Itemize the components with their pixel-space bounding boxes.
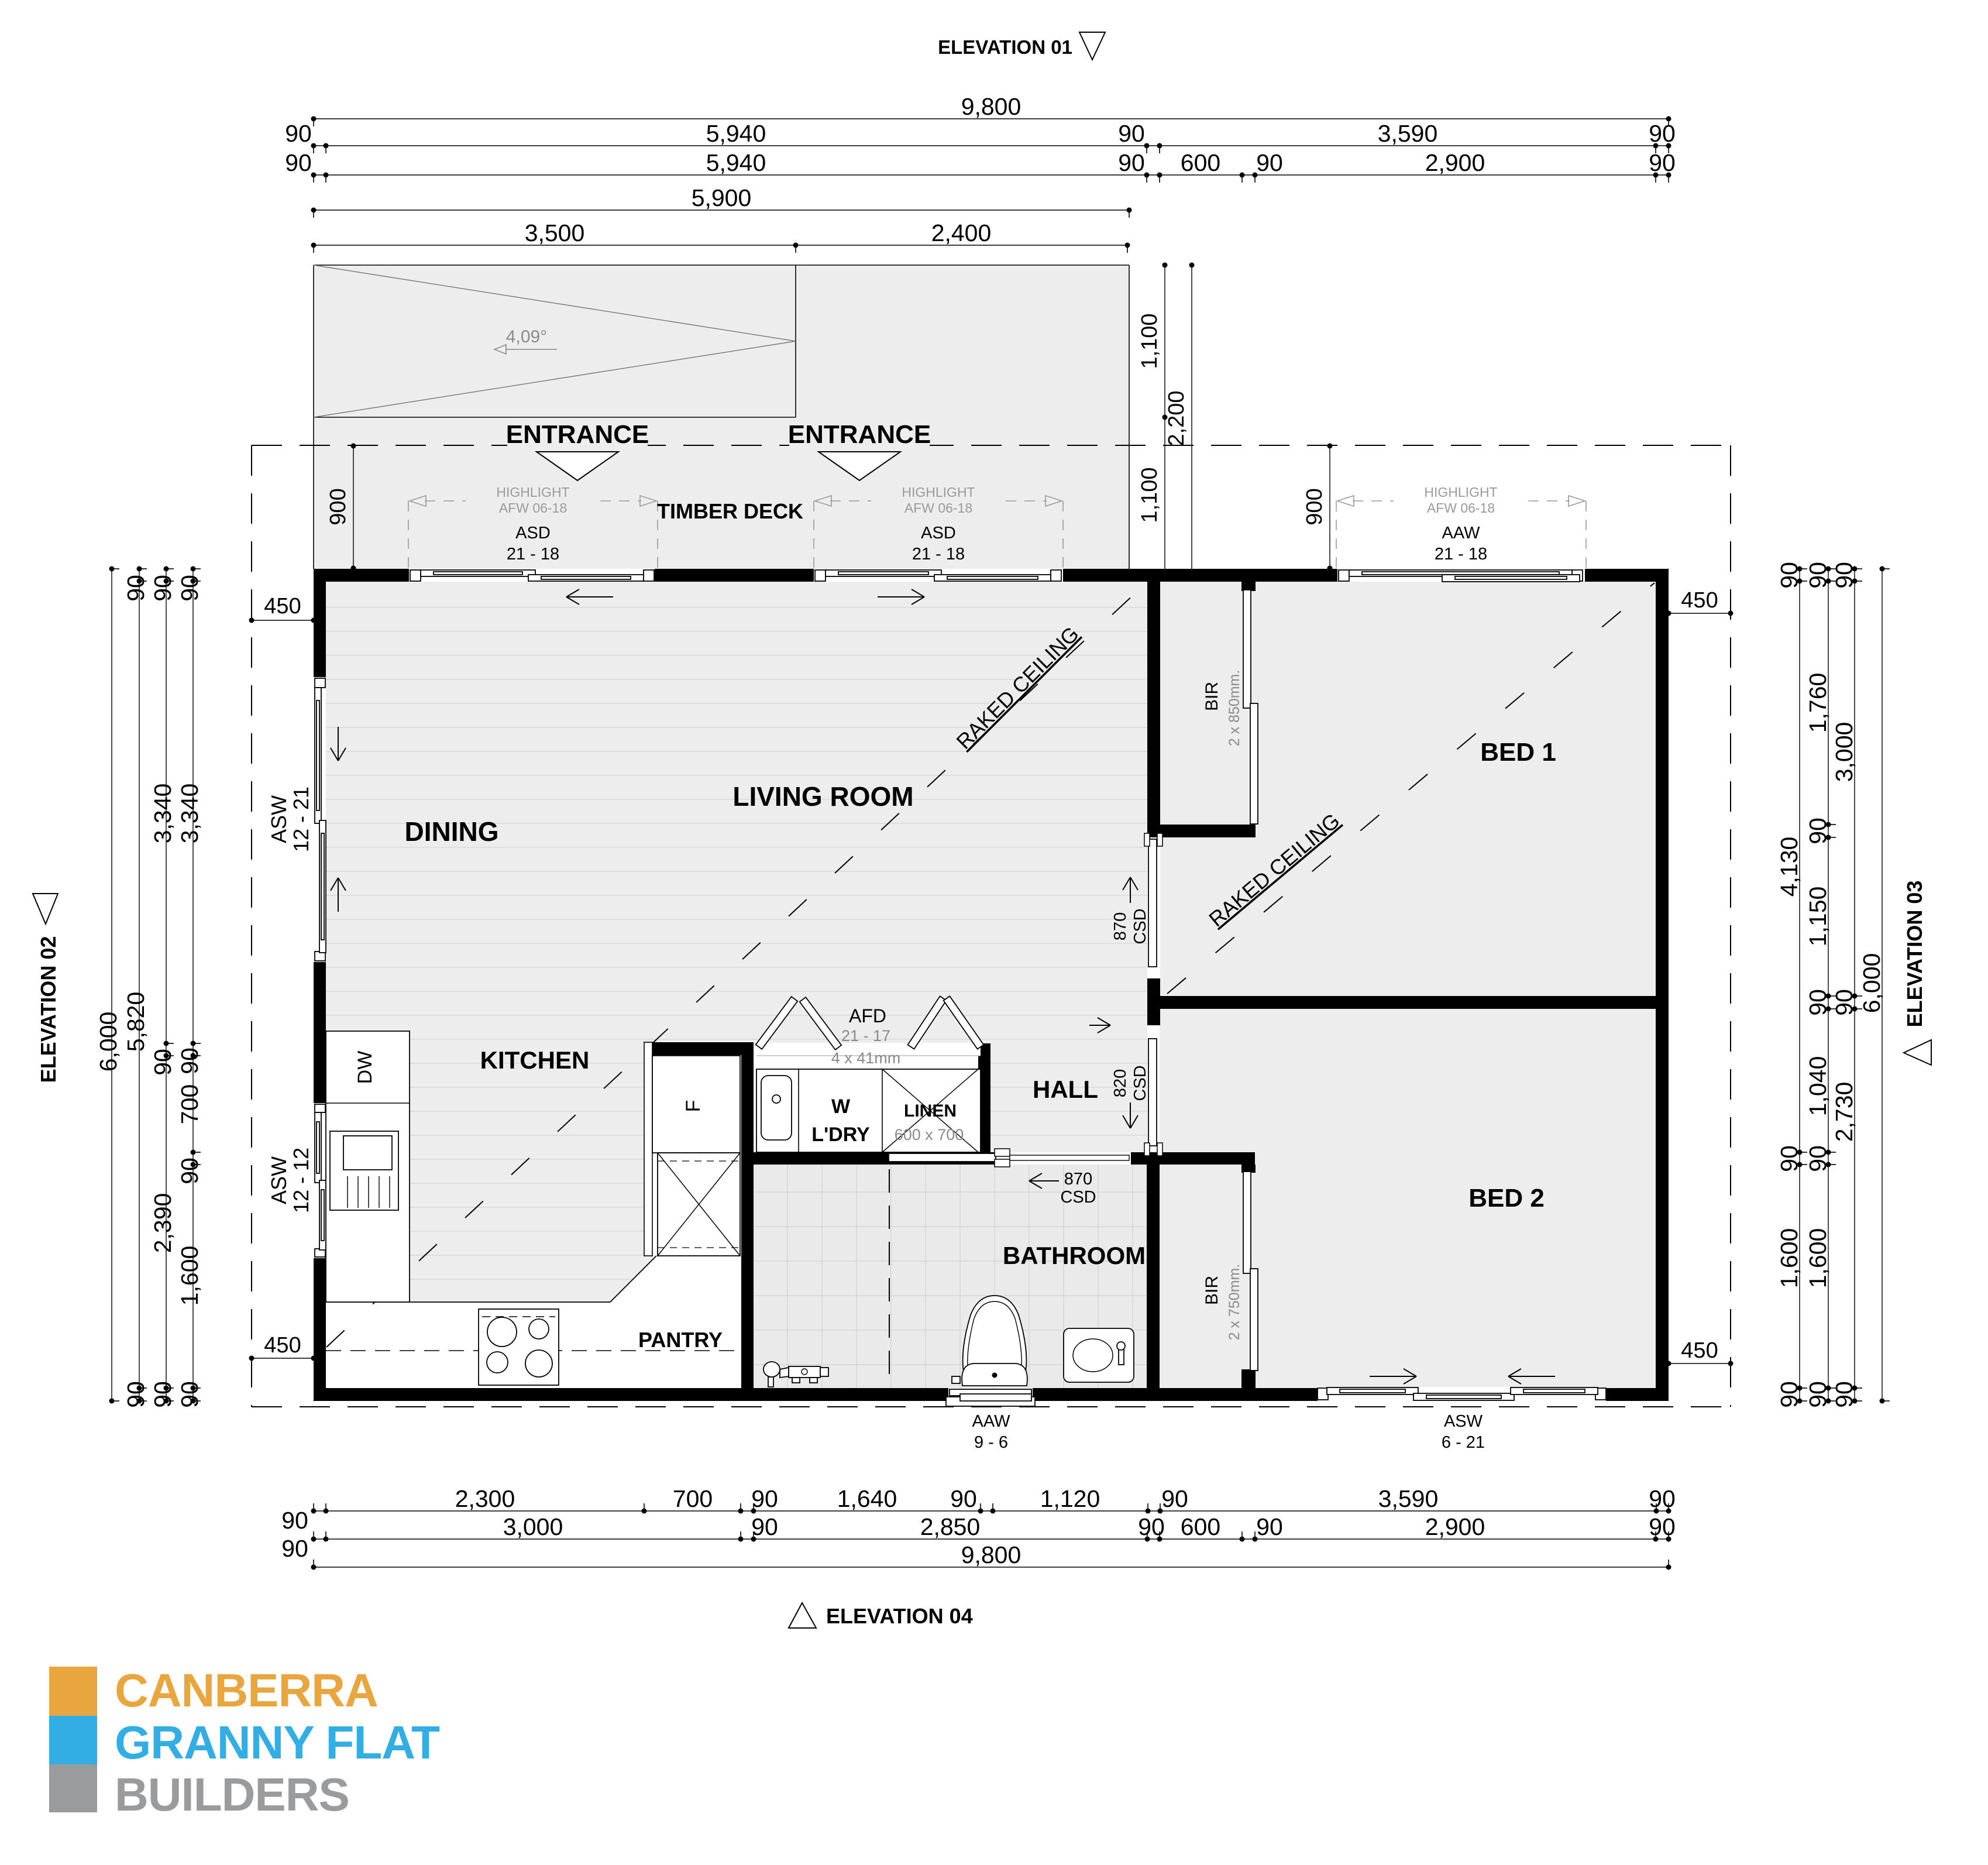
svg-text:6,000: 6,000 <box>1858 953 1885 1014</box>
svg-text:90: 90 <box>1776 1381 1803 1408</box>
svg-text:2,200: 2,200 <box>1164 390 1189 446</box>
svg-text:90: 90 <box>1649 1485 1676 1512</box>
svg-text:5,900: 5,900 <box>692 184 752 211</box>
svg-text:2 x 850mm.: 2 x 850mm. <box>1226 670 1243 747</box>
svg-text:90: 90 <box>1161 1485 1188 1512</box>
svg-text:1,600: 1,600 <box>176 1246 203 1306</box>
svg-text:870: 870 <box>1111 912 1130 940</box>
svg-text:90: 90 <box>1138 1513 1165 1540</box>
svg-text:90: 90 <box>122 575 149 602</box>
svg-text:2 x 750mm.: 2 x 750mm. <box>1226 1264 1243 1341</box>
svg-text:L'DRY: L'DRY <box>811 1124 870 1146</box>
svg-text:21 - 18: 21 - 18 <box>1435 545 1487 564</box>
svg-text:CSD: CSD <box>1060 1188 1096 1207</box>
svg-text:PANTRY: PANTRY <box>638 1328 723 1352</box>
svg-text:AFW 06-18: AFW 06-18 <box>1427 500 1495 516</box>
svg-text:AAW: AAW <box>1442 524 1481 542</box>
svg-text:1,100: 1,100 <box>1137 313 1162 369</box>
svg-text:90: 90 <box>1831 1381 1858 1408</box>
svg-text:600: 600 <box>1181 149 1220 176</box>
svg-text:2,850: 2,850 <box>920 1513 981 1540</box>
svg-text:2,730: 2,730 <box>1831 1082 1858 1142</box>
svg-text:ENTRANCE: ENTRANCE <box>788 420 931 449</box>
svg-text:3,590: 3,590 <box>1378 120 1438 147</box>
svg-text:3,500: 3,500 <box>525 219 585 246</box>
svg-text:21 - 18: 21 - 18 <box>912 545 965 564</box>
svg-text:90: 90 <box>1831 989 1858 1016</box>
svg-text:21 - 18: 21 - 18 <box>507 545 559 564</box>
svg-text:ELEVATION 01: ELEVATION 01 <box>938 36 1072 58</box>
svg-text:4,09°: 4,09° <box>506 327 547 346</box>
svg-text:2,900: 2,900 <box>1425 149 1485 176</box>
svg-text:ENTRANCE: ENTRANCE <box>506 420 649 449</box>
svg-text:BIR: BIR <box>1202 1276 1222 1305</box>
svg-text:90: 90 <box>1649 120 1676 147</box>
svg-text:90: 90 <box>176 575 203 602</box>
svg-text:ELEVATION 03: ELEVATION 03 <box>1903 881 1927 1028</box>
svg-text:3,000: 3,000 <box>503 1513 563 1540</box>
svg-text:90: 90 <box>176 1158 203 1184</box>
svg-text:1,120: 1,120 <box>1040 1485 1100 1512</box>
svg-text:AFW 06-18: AFW 06-18 <box>499 500 567 516</box>
svg-text:HIGHLIGHT: HIGHLIGHT <box>496 485 569 500</box>
svg-text:6 - 21: 6 - 21 <box>1442 1433 1485 1452</box>
svg-text:90: 90 <box>1118 149 1145 176</box>
svg-text:BED 2: BED 2 <box>1468 1184 1545 1213</box>
svg-text:90: 90 <box>1804 818 1831 844</box>
svg-text:90: 90 <box>285 149 312 176</box>
svg-text:DW: DW <box>354 1051 376 1084</box>
svg-text:700: 700 <box>673 1485 713 1512</box>
svg-text:ELEVATION 04: ELEVATION 04 <box>826 1604 973 1628</box>
svg-text:450: 450 <box>264 1333 301 1358</box>
svg-text:2,400: 2,400 <box>931 219 992 246</box>
svg-text:AFD: AFD <box>849 1005 886 1026</box>
svg-text:1,640: 1,640 <box>837 1485 897 1512</box>
svg-text:BUILDERS: BUILDERS <box>115 1768 349 1821</box>
svg-text:90: 90 <box>285 120 312 147</box>
svg-text:ASW: ASW <box>267 795 291 843</box>
svg-text:450: 450 <box>1681 588 1718 613</box>
svg-text:DINING: DINING <box>405 816 499 847</box>
svg-text:90: 90 <box>1804 989 1831 1016</box>
svg-text:900: 900 <box>326 488 350 525</box>
svg-text:900: 900 <box>1302 488 1327 525</box>
svg-text:600 x 700: 600 x 700 <box>895 1126 964 1143</box>
svg-text:1,150: 1,150 <box>1804 887 1831 947</box>
svg-text:700: 700 <box>176 1084 203 1124</box>
svg-text:TIMBER DECK: TIMBER DECK <box>657 499 803 523</box>
svg-text:12 - 12: 12 - 12 <box>289 1148 313 1213</box>
svg-text:AAW: AAW <box>972 1412 1011 1431</box>
svg-text:3,590: 3,590 <box>1378 1485 1439 1512</box>
svg-text:ELEVATION 02: ELEVATION 02 <box>36 936 60 1083</box>
svg-text:90: 90 <box>1804 562 1831 589</box>
svg-text:3,340: 3,340 <box>149 784 176 844</box>
svg-text:90: 90 <box>1256 149 1283 176</box>
svg-text:90: 90 <box>1256 1513 1283 1540</box>
svg-text:2,390: 2,390 <box>149 1193 176 1253</box>
svg-text:12 - 21: 12 - 21 <box>289 786 313 852</box>
svg-text:2,300: 2,300 <box>455 1485 515 1512</box>
svg-text:BATHROOM: BATHROOM <box>1003 1242 1146 1269</box>
svg-text:450: 450 <box>1681 1338 1718 1363</box>
svg-text:90: 90 <box>122 1381 149 1408</box>
svg-text:LINEN: LINEN <box>904 1101 957 1121</box>
svg-text:BED 1: BED 1 <box>1480 738 1556 767</box>
svg-text:21 - 17: 21 - 17 <box>841 1027 890 1045</box>
svg-text:90: 90 <box>176 1381 203 1408</box>
svg-text:90: 90 <box>1649 1513 1676 1540</box>
svg-text:CSD: CSD <box>1131 908 1150 944</box>
svg-text:870: 870 <box>1064 1170 1092 1189</box>
svg-text:5,940: 5,940 <box>706 149 766 176</box>
svg-text:90: 90 <box>281 1535 308 1562</box>
svg-text:1,040: 1,040 <box>1804 1056 1831 1117</box>
svg-text:90: 90 <box>1776 1145 1803 1172</box>
svg-text:ASD: ASD <box>515 524 551 542</box>
svg-text:CANBERRA: CANBERRA <box>115 1664 378 1716</box>
svg-text:90: 90 <box>751 1513 778 1540</box>
svg-text:450: 450 <box>264 594 301 619</box>
svg-text:90: 90 <box>1776 562 1803 589</box>
svg-text:820: 820 <box>1111 1069 1130 1097</box>
svg-text:3,340: 3,340 <box>176 784 203 844</box>
svg-text:1,100: 1,100 <box>1137 467 1162 523</box>
svg-text:BIR: BIR <box>1202 682 1222 711</box>
svg-text:90: 90 <box>1804 1381 1831 1408</box>
svg-text:ASD: ASD <box>921 524 956 542</box>
svg-text:600: 600 <box>1181 1513 1220 1540</box>
svg-text:90: 90 <box>751 1485 778 1512</box>
svg-text:90: 90 <box>176 1047 203 1074</box>
svg-text:1,600: 1,600 <box>1776 1228 1803 1289</box>
svg-text:W: W <box>831 1095 851 1118</box>
svg-text:3,000: 3,000 <box>1831 722 1858 782</box>
svg-text:4 x 41mm: 4 x 41mm <box>831 1049 901 1067</box>
svg-text:HIGHLIGHT: HIGHLIGHT <box>1424 485 1497 500</box>
svg-text:1,760: 1,760 <box>1804 673 1831 733</box>
svg-text:HIGHLIGHT: HIGHLIGHT <box>902 485 975 500</box>
svg-text:9,800: 9,800 <box>961 93 1021 120</box>
svg-text:KITCHEN: KITCHEN <box>480 1046 590 1074</box>
svg-text:4,130: 4,130 <box>1776 837 1803 897</box>
svg-text:90: 90 <box>1804 1145 1831 1172</box>
svg-text:CSD: CSD <box>1131 1065 1150 1101</box>
svg-text:90: 90 <box>281 1507 308 1534</box>
svg-text:90: 90 <box>149 1381 176 1408</box>
svg-text:LIVING ROOM: LIVING ROOM <box>732 781 913 812</box>
svg-text:90: 90 <box>1118 120 1145 147</box>
svg-text:6,000: 6,000 <box>95 1012 122 1072</box>
svg-text:GRANNY FLAT: GRANNY FLAT <box>115 1716 440 1768</box>
svg-text:HALL: HALL <box>1033 1076 1098 1103</box>
svg-text:90: 90 <box>1649 149 1676 176</box>
svg-text:AFW 06-18: AFW 06-18 <box>904 500 972 516</box>
svg-text:5,940: 5,940 <box>706 120 766 147</box>
svg-text:90: 90 <box>149 575 176 602</box>
svg-text:90: 90 <box>149 1049 176 1076</box>
svg-text:9,800: 9,800 <box>961 1541 1021 1568</box>
svg-text:ASW: ASW <box>267 1156 291 1204</box>
svg-text:90: 90 <box>1831 562 1858 589</box>
svg-text:ASW: ASW <box>1444 1412 1483 1431</box>
svg-text:9 - 6: 9 - 6 <box>974 1433 1008 1452</box>
svg-text:1,600: 1,600 <box>1804 1228 1831 1289</box>
svg-text:2,900: 2,900 <box>1425 1513 1485 1540</box>
svg-text:F: F <box>682 1100 704 1112</box>
svg-text:90: 90 <box>950 1485 977 1512</box>
svg-text:5,820: 5,820 <box>122 992 149 1052</box>
